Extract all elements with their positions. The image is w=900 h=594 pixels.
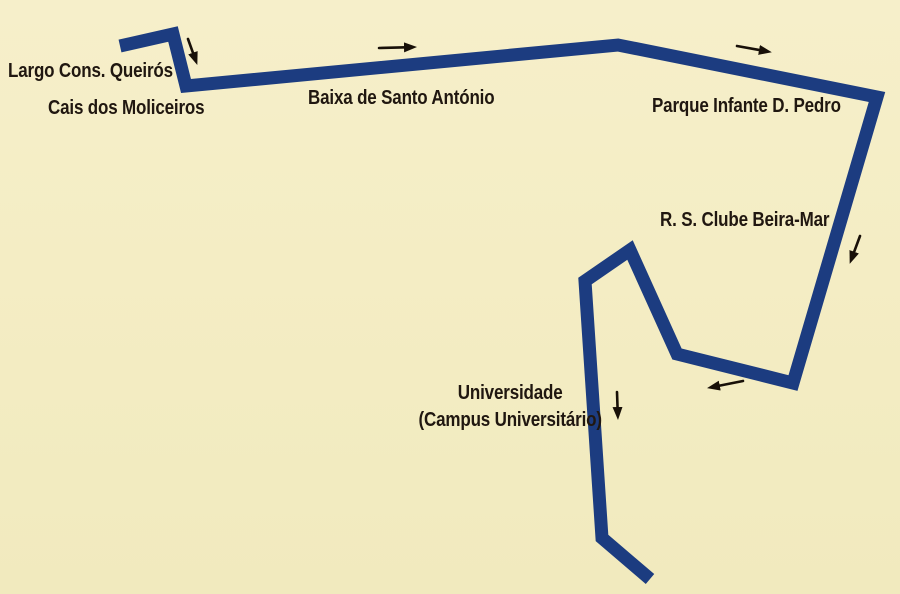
- label-universidade: Universidade (Campus Universitário): [419, 380, 602, 434]
- label-clube-beira-mar: R. S. Clube Beira-Mar: [660, 210, 829, 231]
- arrow-down-queiros-icon: [188, 39, 194, 55]
- arrow-left-loop-icon: [718, 381, 743, 386]
- label-baixa-santo-antonio: Baixa de Santo António: [308, 88, 494, 109]
- label-parque-infante-pedro: Parque Infante D. Pedro: [652, 96, 841, 117]
- label-cais-dos-moliceiros: Cais dos Moliceiros: [48, 98, 204, 119]
- label-universidade-line2: (Campus Universitário): [419, 407, 602, 434]
- route-map: Largo Cons. Queirós Cais dos Moliceiros …: [0, 0, 900, 594]
- label-largo-cons-queiros: Largo Cons. Queirós: [8, 61, 173, 82]
- arrow-down-beiramar-icon: [854, 236, 861, 254]
- arrow-right-parque-icon: [737, 46, 761, 50]
- label-universidade-line1: Universidade: [419, 380, 602, 407]
- arrow-down-universidade-icon: [617, 392, 618, 409]
- arrow-right-baixa-icon: [379, 47, 406, 48]
